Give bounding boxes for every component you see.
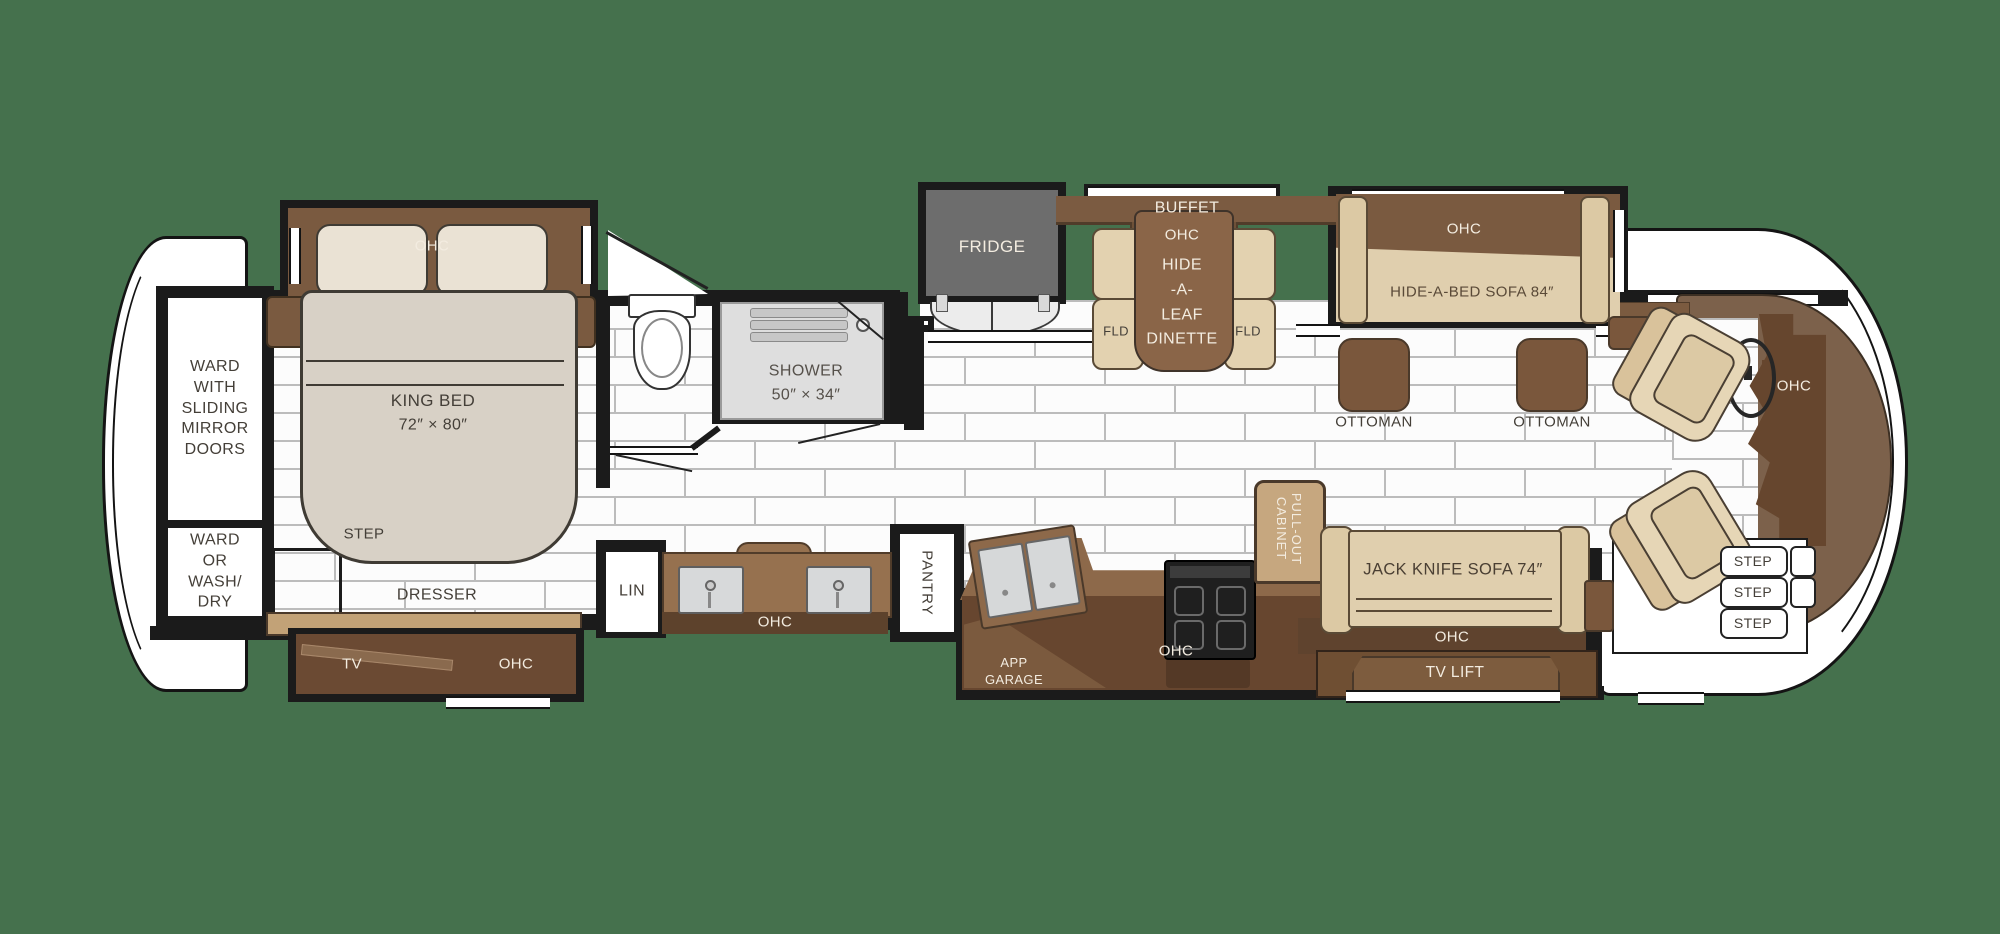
stove-reflection xyxy=(1166,658,1250,688)
pillow-left xyxy=(316,224,428,296)
jack-knife-seat-edge xyxy=(1356,598,1552,612)
king-bed-fold-band xyxy=(306,360,564,386)
shower-shelf-1 xyxy=(750,308,848,318)
kitchen-sink xyxy=(968,524,1089,630)
dinette-label: HIDE -A- LEAF DINETTE xyxy=(1146,253,1217,352)
entry-step-2-label: STEP xyxy=(1734,583,1772,601)
sofa-ohc-label: OHC xyxy=(1447,219,1482,239)
pillow-right xyxy=(436,224,548,296)
ottoman-right-label: OTTOMAN xyxy=(1513,412,1591,432)
wardrobe-sliding-label: WARD WITH SLIDING MIRROR DOORS xyxy=(181,357,248,461)
sofa-armrest-right xyxy=(1580,196,1610,324)
entry-step-1-label: STEP xyxy=(1734,552,1772,570)
fld-right-label: FLD xyxy=(1235,324,1261,341)
bed-slide-rail-left xyxy=(289,228,301,284)
faucet-left-icon xyxy=(705,580,716,591)
bedroom-step-label: STEP xyxy=(344,524,385,544)
entry-slide-rail xyxy=(1638,692,1704,705)
stove-burner-1 xyxy=(1174,586,1204,616)
king-bed-size-label: 72″ × 80″ xyxy=(399,416,468,437)
shower-shelf-3 xyxy=(750,332,848,342)
fridge-hinge-left xyxy=(936,294,948,312)
faucet-right-icon xyxy=(833,580,844,591)
jack-knife-label: JACK KNIFE SOFA 74″ xyxy=(1363,559,1542,580)
tv-lift-label: TV LIFT xyxy=(1426,663,1485,683)
fridge-hinge-right xyxy=(1038,294,1050,312)
ottoman-left-label: OTTOMAN xyxy=(1335,412,1413,432)
tv-lift-slide-rail xyxy=(1346,690,1560,703)
wardrobe-washdry-label: WARD OR WASH/ DRY xyxy=(188,530,242,613)
shower-size-label: 50″ × 34″ xyxy=(772,386,841,407)
living-ohc-label: OHC xyxy=(1435,627,1470,647)
bath-wall-left xyxy=(596,292,610,488)
step-well xyxy=(272,548,342,620)
entry-step-3-label: STEP xyxy=(1734,614,1772,632)
shower-label: SHOWER xyxy=(769,362,843,383)
kitchen-ohc-label: OHC xyxy=(1159,641,1194,661)
dresser-tv-label: TV xyxy=(342,654,362,674)
bed-ohc-label: OHC xyxy=(415,236,450,256)
stove-burner-4 xyxy=(1216,620,1246,650)
ottoman-right xyxy=(1516,338,1588,412)
fridge-door-split xyxy=(991,302,993,330)
cockpit-ohc-label: OHC xyxy=(1777,376,1812,396)
vanity-ohc-label: OHC xyxy=(758,612,793,632)
hide-a-bed-label: HIDE-A-BED SOFA 84″ xyxy=(1390,282,1554,302)
entry-step-partial-1 xyxy=(1790,546,1816,577)
stove-knob-strip xyxy=(1170,566,1250,578)
hall-wall xyxy=(904,318,924,430)
dresser-ohc-label: OHC xyxy=(499,654,534,674)
stove-burner-2 xyxy=(1216,586,1246,616)
sink-bowl-left xyxy=(977,542,1033,618)
faucet-left-stem xyxy=(708,592,711,608)
entry-step-partial-2 xyxy=(1790,577,1816,608)
sofa-slide-rail-right xyxy=(1613,210,1626,292)
sofa-rail-left xyxy=(1296,324,1340,337)
sink-bowl-right xyxy=(1025,535,1081,611)
dresser-label: DRESSER xyxy=(397,586,477,607)
bath-pocket-door xyxy=(610,446,698,455)
king-bed-label: KING BED xyxy=(391,390,475,412)
fld-left-label: FLD xyxy=(1103,324,1129,341)
buffet-ohc-label: OHC xyxy=(1165,225,1200,245)
ottoman-left xyxy=(1338,338,1410,412)
sofa-armrest-left xyxy=(1338,196,1368,324)
toilet-seat-line xyxy=(641,318,683,378)
app-garage-label: APP GARAGE xyxy=(985,655,1043,689)
fridge-slide-rail xyxy=(928,330,1100,343)
buffet-label: BUFFET xyxy=(1155,199,1220,220)
lin-label: LIN xyxy=(619,582,645,603)
pantry-label: PANTRY xyxy=(918,550,935,615)
fridge-label: FRIDGE xyxy=(959,236,1026,258)
pullout-cabinet-label: PULL-OUT CABINET xyxy=(1273,493,1303,565)
sofa-side-table xyxy=(1584,580,1614,632)
shower-shelf-2 xyxy=(750,320,848,330)
rv-floorplan-canvas: WARD WITH SLIDING MIRROR DOORS WARD OR W… xyxy=(0,0,2000,934)
faucet-right-stem xyxy=(836,592,839,608)
bed-slide-rail-right xyxy=(581,226,593,284)
dresser-slide-rail xyxy=(446,696,550,709)
